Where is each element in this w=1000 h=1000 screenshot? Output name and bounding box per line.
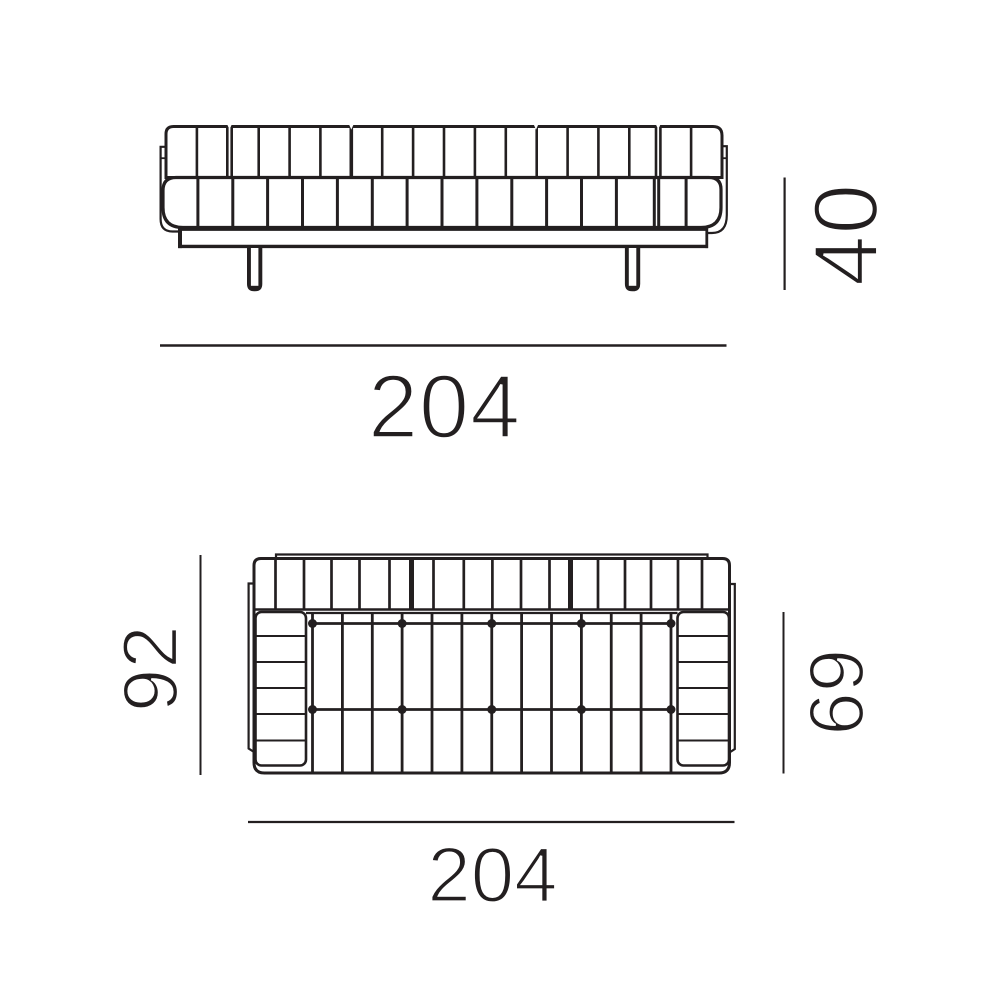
svg-text:69: 69 bbox=[792, 649, 880, 736]
svg-text:204: 204 bbox=[427, 830, 557, 918]
svg-text:40: 40 bbox=[796, 183, 897, 286]
svg-text:204: 204 bbox=[368, 358, 521, 458]
svg-text:92: 92 bbox=[106, 625, 194, 712]
